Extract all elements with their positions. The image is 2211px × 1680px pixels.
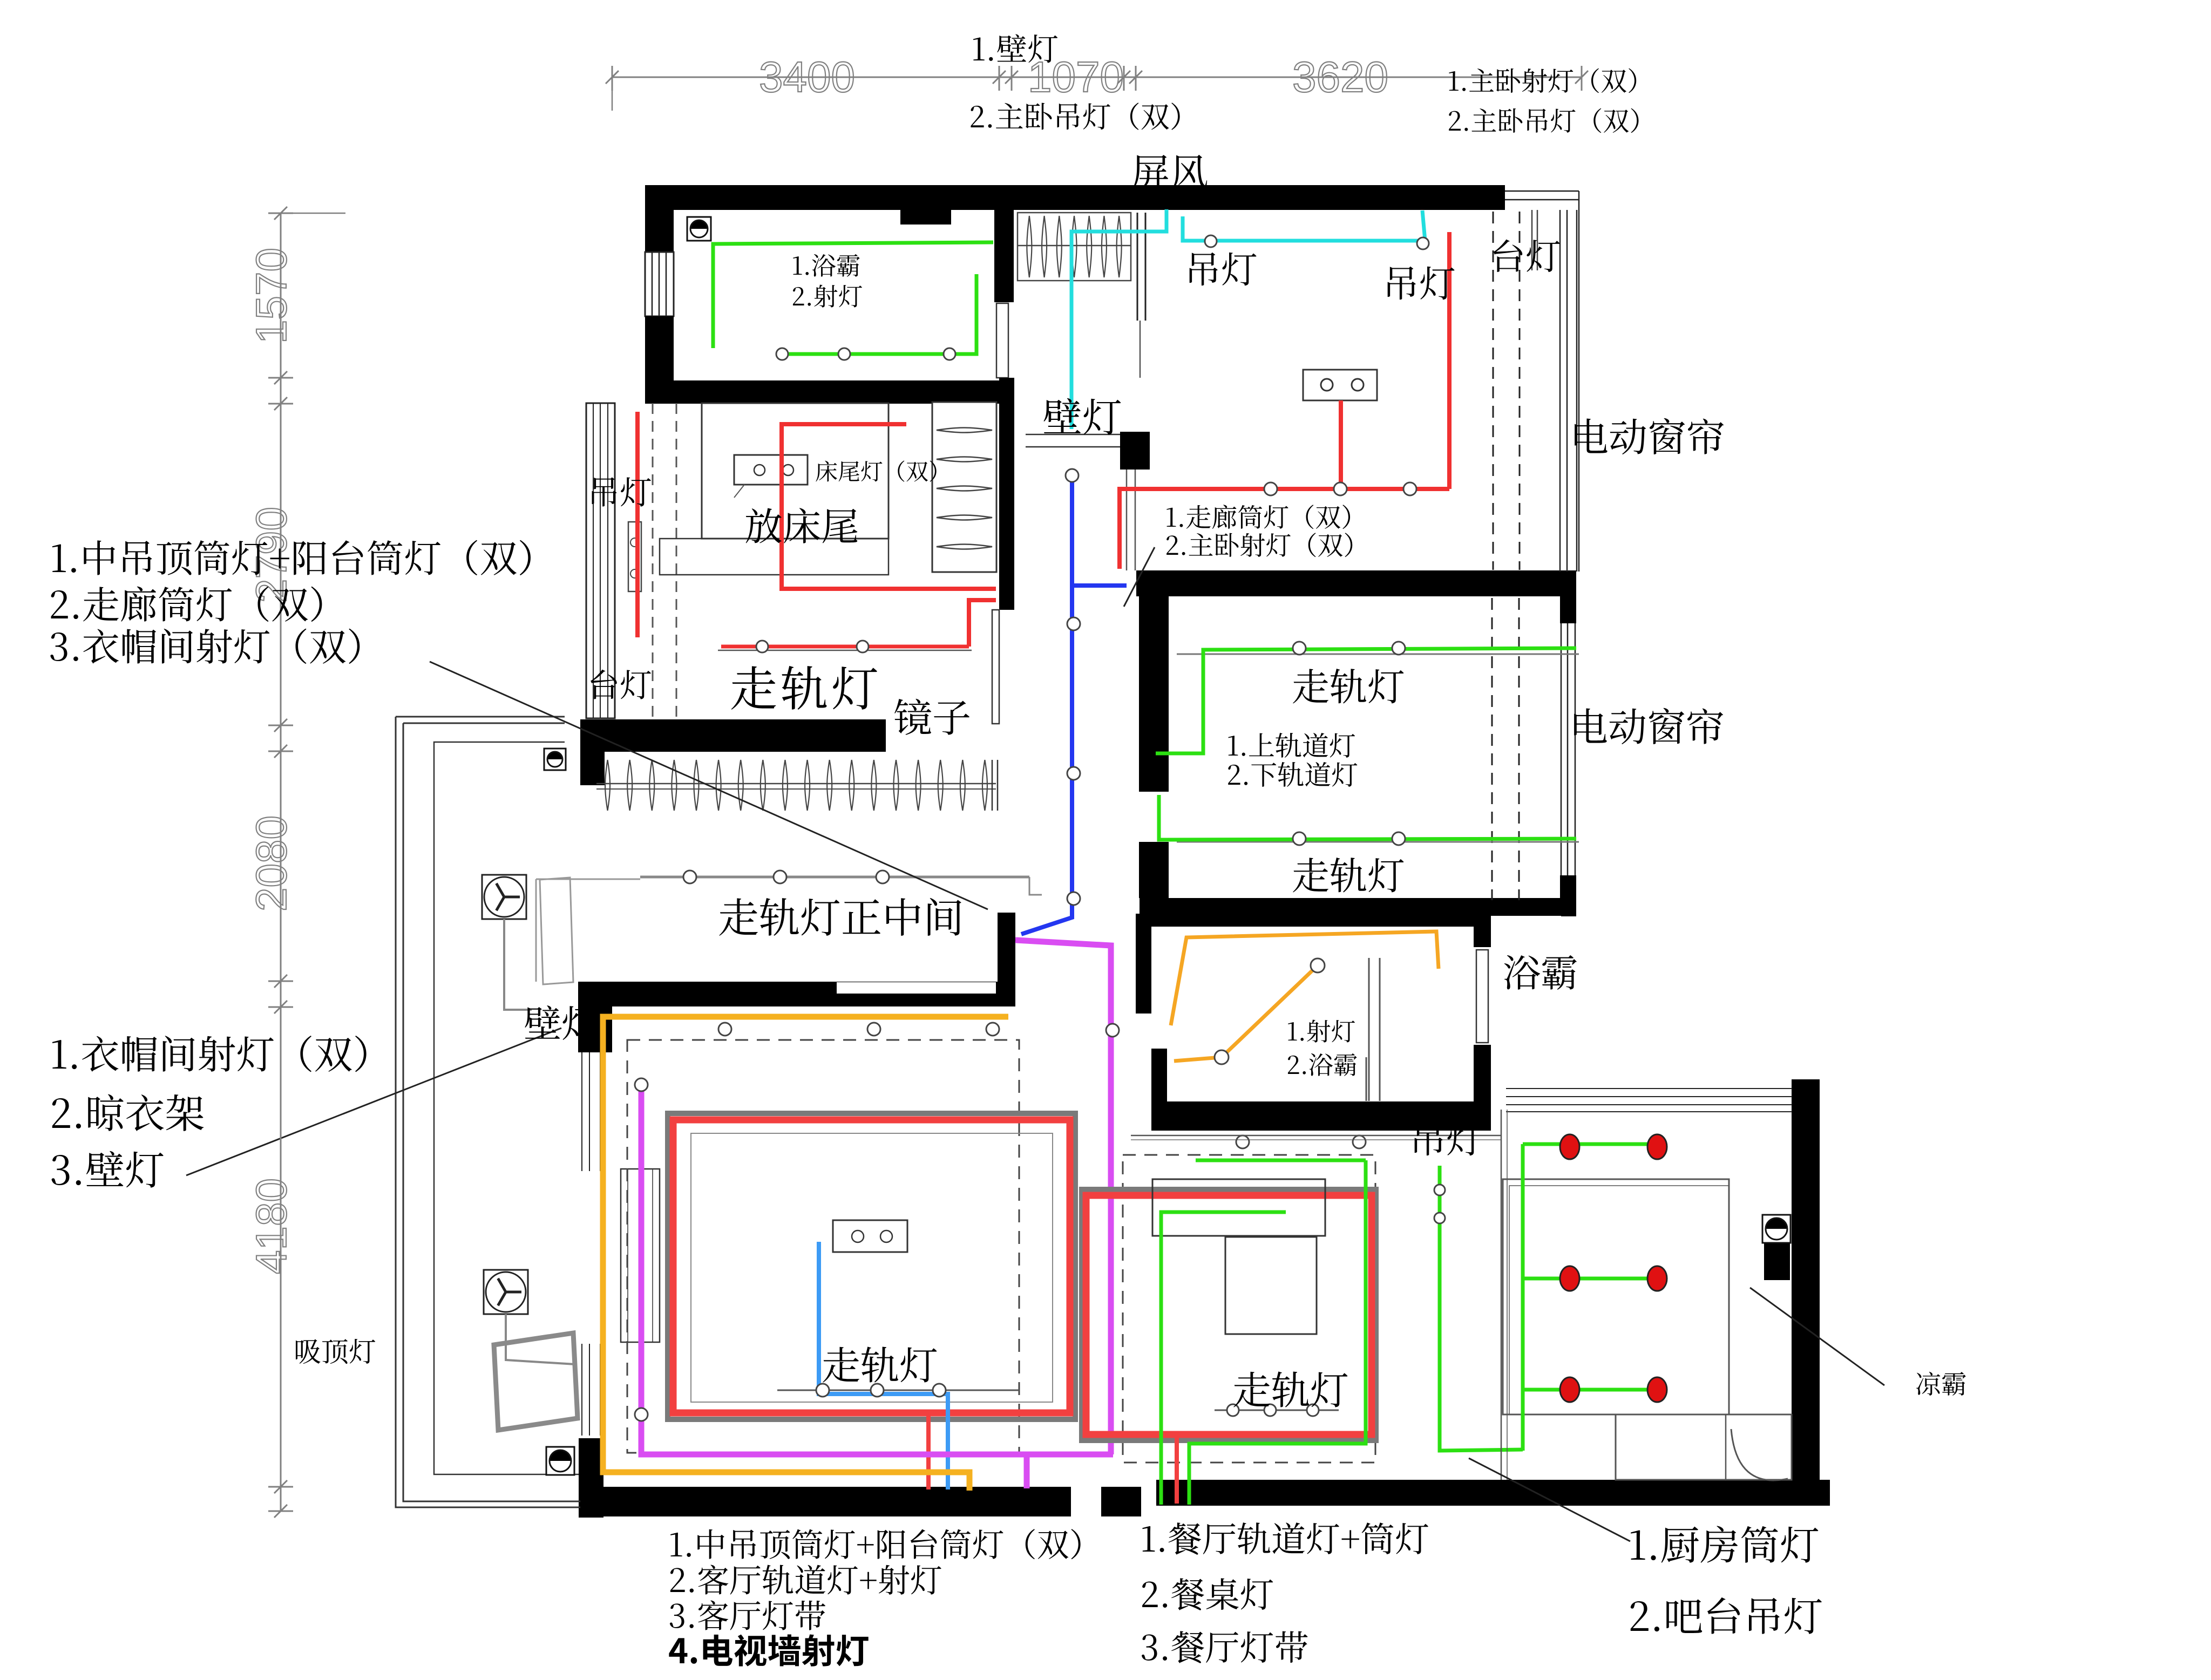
- svg-text:3620: 3620: [1292, 53, 1388, 101]
- svg-text:2080: 2080: [247, 815, 295, 912]
- svg-text:1070: 1070: [1028, 53, 1124, 101]
- svg-text:3400: 3400: [759, 53, 855, 101]
- svg-text:1570: 1570: [247, 248, 295, 344]
- svg-text:2790: 2790: [247, 507, 295, 603]
- svg-text:4180: 4180: [247, 1178, 295, 1274]
